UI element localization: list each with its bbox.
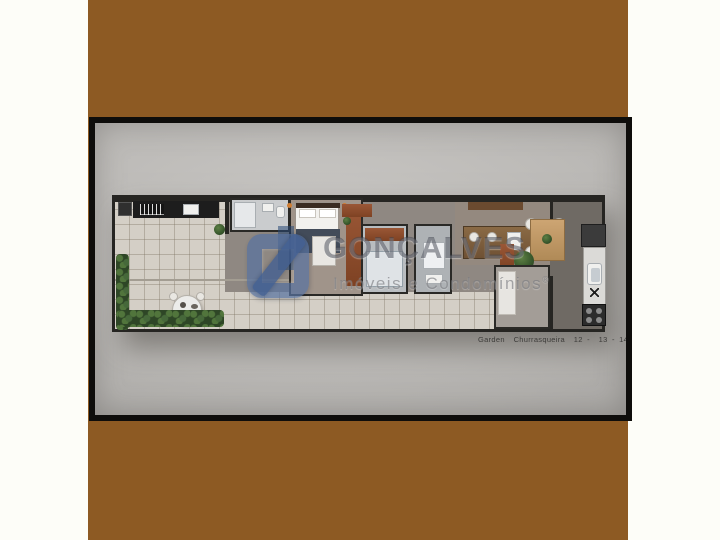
laundry-sink <box>425 274 443 284</box>
bathroom-sink <box>262 203 274 212</box>
suite-room <box>494 265 550 329</box>
photo-caption: Garden Churrasqueira 12 - 13 - 14 <box>478 335 626 344</box>
grill-icon <box>140 204 164 215</box>
photo-background: GONÇALVES Imóveis e Condomínios® Garden … <box>95 123 626 415</box>
hedge-bottom <box>118 310 224 327</box>
burner <box>586 308 592 314</box>
desk-chair <box>487 232 497 242</box>
toilet <box>276 206 285 218</box>
counter-sink <box>183 204 199 215</box>
faucet-icon <box>590 288 599 297</box>
table-plant <box>542 234 552 244</box>
burner <box>596 308 602 314</box>
table-setting <box>191 304 198 309</box>
kitchen-sink <box>587 263 602 285</box>
hall-console <box>342 204 372 217</box>
wall-shelf <box>468 202 523 210</box>
bathroom-2 <box>361 224 408 294</box>
floorplan-photo: GONÇALVES Imóveis e Condomínios® Garden … <box>89 117 632 421</box>
console-plant <box>343 217 351 225</box>
dresser <box>312 236 336 266</box>
kitchen-wall-lower <box>550 276 553 329</box>
burner <box>596 317 602 323</box>
refrigerator <box>581 224 606 247</box>
page: { "photo": { "caption": "Garden Churrasq… <box>0 0 720 540</box>
pillow <box>299 209 316 218</box>
terrace-plant <box>214 224 225 235</box>
shower-stall <box>234 202 256 228</box>
sink-basin <box>591 268 600 282</box>
nightstand-lamp <box>287 203 292 208</box>
single-bed <box>498 271 516 315</box>
terrace-division-line <box>115 279 311 281</box>
bathroom-1 <box>230 198 290 232</box>
table-setting <box>180 302 186 308</box>
washer <box>423 242 445 269</box>
laundry-room <box>414 224 452 294</box>
pillow <box>319 209 336 218</box>
burner <box>586 317 592 323</box>
shower-box <box>366 251 403 287</box>
floor-plan <box>112 195 605 332</box>
stove <box>582 304 606 326</box>
bathroom-vanity <box>365 228 404 241</box>
desk-chair <box>469 232 479 242</box>
terrace-wall <box>225 198 229 234</box>
bed-headboard <box>296 203 340 208</box>
wall-cabinet <box>118 202 132 216</box>
